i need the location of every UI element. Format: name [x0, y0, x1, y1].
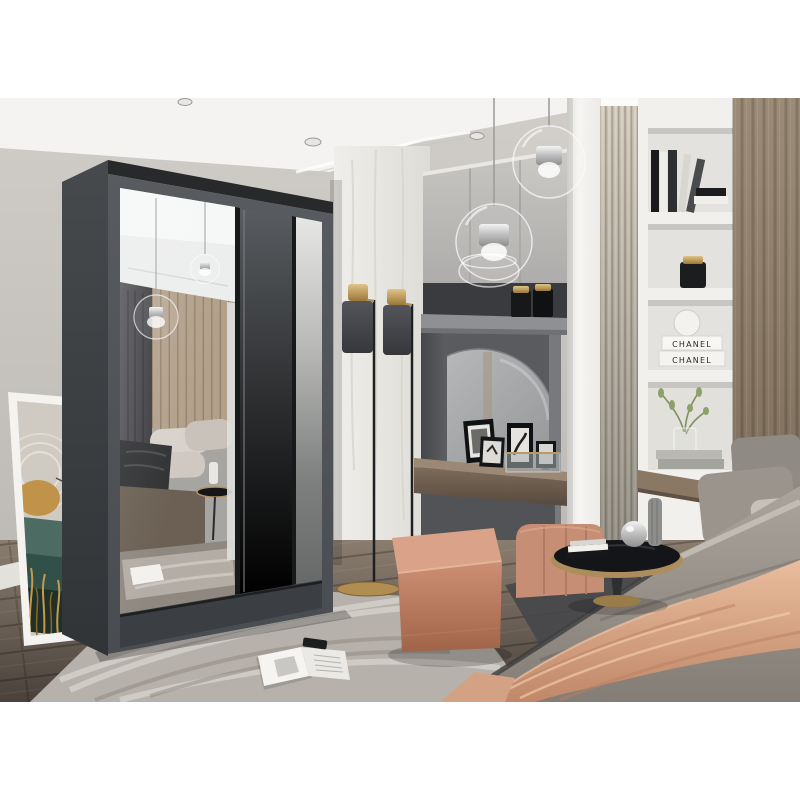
table-books: [566, 539, 610, 559]
chanel-book-spine-text: CHANEL: [672, 340, 712, 349]
book-spine: [660, 152, 667, 212]
lamp-base: [337, 582, 399, 596]
marble-panel: [334, 146, 430, 568]
bedroom-photo-canvas: CHANEL CHANEL: [0, 0, 800, 800]
photo: CHANEL CHANEL: [0, 98, 800, 702]
tall-vase: [648, 498, 662, 546]
book-flat: [696, 188, 726, 196]
chanel-book-spine-text: CHANEL: [672, 356, 712, 365]
niche-shadow: [648, 224, 733, 230]
lamp-gold-top: [348, 284, 368, 301]
sphere-highlight: [626, 526, 634, 532]
pendant-glow: [481, 243, 507, 261]
ribbed-shade: [600, 106, 640, 572]
door-handle-stile: [235, 207, 240, 595]
pendant-glow: [538, 162, 560, 178]
wardrobe-side-panel: [62, 160, 108, 656]
shelf-candle-jar: [680, 256, 706, 288]
candle-jar-lid: [535, 284, 551, 291]
book-spine: [668, 150, 677, 212]
wardrobe: [62, 160, 352, 662]
candle-jar-lid: [683, 256, 703, 264]
stacked-book: [656, 450, 722, 459]
stacked-book: [658, 459, 724, 469]
spotlight: [470, 133, 484, 140]
spotlight: [305, 138, 321, 146]
photo-frame: [479, 436, 505, 467]
candle-jar: [533, 289, 553, 317]
grey-door: [240, 208, 292, 594]
lamp-shade: [342, 301, 373, 353]
pendant-bulb: [479, 224, 509, 246]
candle-jar: [680, 262, 706, 288]
deco-sphere: [674, 310, 700, 336]
candle-jar-lid: [513, 286, 529, 293]
frame-mat: [482, 441, 501, 464]
book-flat: [694, 196, 728, 204]
leaf: [658, 388, 664, 398]
niche-shadow: [648, 300, 733, 306]
chrome-sphere-vase: [621, 521, 647, 547]
book-spine: [651, 150, 659, 212]
lamp-gold-top: [387, 289, 406, 305]
lamp-shade: [383, 305, 411, 355]
bedroom-photo: CHANEL CHANEL: [0, 0, 800, 800]
ribbed-panel: [600, 106, 640, 572]
glass-box: [506, 453, 560, 472]
niche-shadow: [648, 128, 733, 134]
spotlight: [178, 99, 192, 106]
mirror-sheen: [120, 188, 235, 614]
table-base: [593, 595, 641, 607]
mirror-strip-right: [296, 217, 322, 584]
leaf: [669, 400, 675, 410]
candle-jar: [511, 291, 531, 317]
mirror-reflection: [120, 186, 235, 614]
marble-face: [334, 146, 430, 568]
door-gap: [292, 216, 296, 585]
glass-box-body: [506, 453, 560, 472]
leaf: [696, 387, 702, 397]
pouf-front: [398, 562, 502, 652]
pouf: [388, 528, 512, 667]
leaf: [687, 404, 693, 412]
leaf: [703, 407, 709, 415]
niche-shadow: [648, 382, 733, 388]
